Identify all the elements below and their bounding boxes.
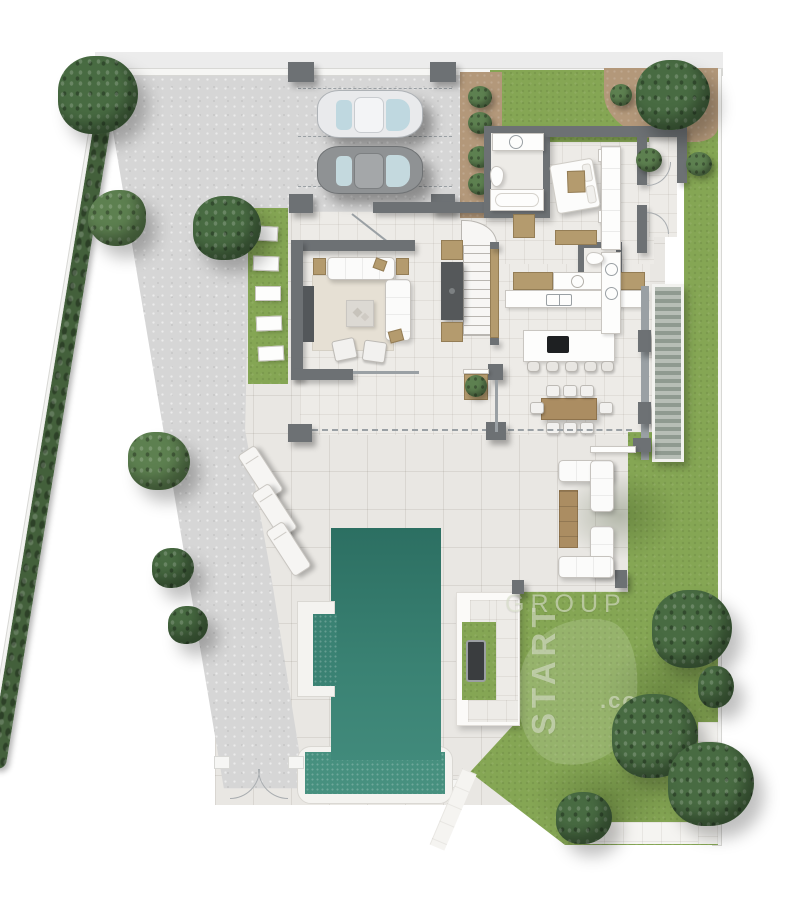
bed-throw: [567, 170, 586, 193]
car-gray: [317, 146, 423, 194]
outdoor-coffee-table: [559, 490, 578, 548]
fireplace-cabinet: [441, 322, 463, 342]
glass-fin: [495, 380, 498, 432]
car-roof: [354, 97, 384, 133]
carport-pillar: [430, 62, 456, 82]
bar-stool: [546, 361, 559, 372]
street-strip: [95, 52, 723, 68]
hall-cabinet: [555, 230, 597, 245]
dining-chair: [563, 422, 577, 434]
swimming-pool: [331, 528, 441, 760]
shrub: [636, 148, 662, 172]
fireplace: [441, 262, 463, 320]
bush: [152, 548, 194, 588]
planter-plant: [465, 375, 487, 397]
car-silver: [317, 90, 423, 138]
dining-chair: [563, 385, 577, 397]
car-windshield: [386, 155, 410, 187]
bbq-pillar: [512, 580, 524, 594]
outdoor-sofa: [590, 460, 614, 512]
pergola-deck: [652, 284, 684, 462]
shrub: [686, 152, 712, 176]
car-windshield: [386, 99, 410, 131]
lawn-shadow-patch: [560, 470, 680, 560]
floor-plan-canvas: GROUP START .com: [0, 0, 800, 905]
washer-icon: [605, 263, 618, 276]
wall-living-north: [291, 240, 415, 251]
sink-divider: [559, 295, 560, 305]
dryer-icon: [605, 287, 618, 300]
watermark-start: START: [525, 605, 561, 735]
living-glass-wall: [353, 371, 419, 374]
stepping-stone: [255, 286, 281, 301]
gate-post: [214, 756, 230, 769]
fire-pit: [466, 640, 486, 682]
gate-post: [288, 756, 304, 769]
dining-chair: [530, 402, 544, 414]
staircase: [463, 244, 491, 336]
kitchen-upper-center: [553, 272, 605, 290]
wall-block: [488, 364, 503, 380]
stair-wood-screen: [490, 246, 499, 338]
stepping-stone: [258, 345, 285, 361]
bathtub: [490, 189, 544, 211]
dining-chair: [580, 385, 594, 397]
bathtub-inner: [495, 193, 539, 207]
shrub: [468, 86, 492, 108]
kitchen-island: [523, 330, 615, 362]
armchair: [362, 340, 388, 364]
wardrobe-column: [601, 146, 621, 250]
bar-stool: [601, 361, 614, 372]
dining-chair: [580, 422, 594, 434]
bathroom-sink-icon: [509, 135, 523, 149]
dining-chair: [546, 422, 560, 434]
palm-tree: [88, 190, 146, 246]
car-roof: [354, 153, 384, 189]
terrace-pillar: [288, 424, 312, 442]
tree-garden: [668, 742, 754, 826]
kitchen-glass-wall: [641, 286, 649, 460]
coffee-table: [346, 300, 374, 327]
fireplace-dot: [449, 288, 455, 294]
pool-step-notch: [313, 614, 337, 686]
decor-diamond: [361, 313, 369, 321]
cooktop: [547, 336, 569, 353]
stepping-stone: [256, 316, 283, 332]
bar-stool: [584, 361, 597, 372]
double-sink-icon: [546, 294, 572, 306]
carport-pillar: [289, 194, 313, 213]
screen-cap: [490, 242, 499, 249]
bbq-tile-bottom: [468, 700, 518, 722]
wall-living-south: [291, 369, 353, 380]
side-table: [396, 258, 409, 275]
shrub: [610, 84, 632, 106]
wall-living-west: [291, 240, 303, 380]
plate-icon: [571, 275, 584, 288]
dining-table: [541, 398, 597, 420]
kitchen-counter: [505, 290, 647, 308]
palm-tree: [128, 432, 190, 490]
sliding-glass-line: [312, 429, 488, 431]
appliance-column: [601, 252, 621, 334]
bed-pillow: [585, 185, 597, 204]
hall-cabinet: [513, 214, 535, 238]
parking-line: [298, 88, 452, 89]
boundary-hedge: [0, 86, 117, 770]
screen-cap: [490, 338, 499, 345]
glass-wall-pillar: [638, 402, 651, 424]
tv-sideboard: [303, 286, 314, 342]
stepping-stone: [253, 256, 280, 272]
outdoor-shelf: [590, 446, 636, 453]
bar-stool: [565, 361, 578, 372]
wall-bedroom-east-b: [637, 205, 647, 253]
dining-chair: [546, 385, 560, 397]
terrace-pillar: [615, 570, 627, 588]
bed: [549, 158, 601, 215]
car-rear-glass: [336, 156, 352, 186]
kitchen-upper-cabinet: [513, 272, 553, 290]
glass-wall-pillar: [638, 330, 651, 352]
bar-stool: [527, 361, 540, 372]
outdoor-sofa: [558, 556, 614, 578]
carport-pillar: [288, 62, 314, 82]
car-rear-glass: [336, 100, 352, 130]
sliding-glass-line: [508, 429, 632, 431]
dining-chair: [599, 402, 613, 414]
fireplace-cabinet: [441, 240, 463, 260]
side-table: [313, 258, 326, 275]
